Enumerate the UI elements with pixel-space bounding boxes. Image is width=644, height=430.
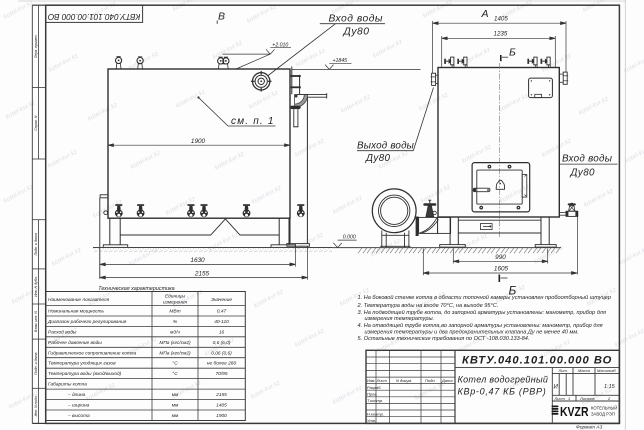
- svg-text:kotel-kvr.kz: kotel-kvr.kz: [251, 184, 284, 206]
- svg-text:Разраб.: Разраб.: [367, 385, 381, 390]
- svg-text:Справ. N: Справ. N: [34, 115, 38, 130]
- svg-text:kotel-kvr.kz: kotel-kvr.kz: [253, 288, 286, 310]
- svg-text:Масштаб: Масштаб: [597, 368, 616, 373]
- svg-text:kotel-kvr.kz: kotel-kvr.kz: [414, 380, 447, 402]
- svg-text:kotel-kvr.kz: kotel-kvr.kz: [340, 93, 373, 115]
- svg-text:Ду80: Ду80: [365, 153, 391, 164]
- svg-text:16: 16: [219, 329, 225, 335]
- svg-text:kotel-kvr.kz: kotel-kvr.kz: [214, 150, 247, 172]
- svg-text:%: %: [173, 319, 178, 325]
- svg-text:1630: 1630: [190, 257, 205, 264]
- svg-text:°С: °С: [172, 371, 178, 377]
- svg-text:Утв.: Утв.: [367, 418, 376, 423]
- svg-text:Инв. N подл.: Инв. N подл.: [34, 395, 38, 416]
- svg-text:kotel-kvr.kz: kotel-kvr.kz: [332, 384, 365, 406]
- svg-text:Лист: Лист: [376, 378, 388, 383]
- svg-text:Подп.: Подп.: [425, 378, 436, 383]
- svg-text:kotel-kvr.kz: kotel-kvr.kz: [3, 0, 36, 21]
- svg-text:И: И: [554, 385, 559, 391]
- svg-text:мм: мм: [172, 393, 179, 398]
- svg-text:5. Остальные технические треб: 5. Остальные технические требования по О…: [358, 336, 530, 342]
- svg-text:kotel-kvr.kz: kotel-kvr.kz: [582, 0, 615, 14]
- svg-text:+2.010: +2.010: [272, 42, 288, 48]
- svg-text:Листов: Листов: [579, 396, 595, 401]
- svg-text:Б: Б: [509, 47, 516, 59]
- svg-text:мм: мм: [172, 414, 179, 419]
- svg-text:kotel-kvr.kz: kotel-kvr.kz: [47, 148, 80, 170]
- svg-text:Н.контр.: Н.контр.: [367, 411, 384, 416]
- svg-text:м3/ч: м3/ч: [170, 329, 180, 335]
- svg-text:kotel-kvr.kz: kotel-kvr.kz: [87, 101, 120, 123]
- svg-text:kotel-kvr.kz: kotel-kvr.kz: [498, 92, 531, 114]
- svg-text:kotel-kvr.kz: kotel-kvr.kz: [246, 3, 279, 25]
- svg-text:kotel-kvr.kz: kotel-kvr.kz: [372, 38, 405, 60]
- svg-text:Инв. N дубл.: Инв. N дубл.: [34, 276, 38, 297]
- svg-text:В: В: [218, 11, 225, 23]
- svg-text:kotel-kvr.kz: kotel-kvr.kz: [618, 245, 644, 267]
- svg-text:Лист: Лист: [554, 396, 566, 401]
- svg-text:2: 2: [607, 396, 611, 401]
- svg-text:4. На отводящей трубе котла,в: 4. На отводящей трубе котла,во запорной …: [358, 322, 603, 329]
- svg-text:1405: 1405: [494, 15, 508, 22]
- svg-text:kotel-kvr.kz: kotel-kvr.kz: [51, 246, 84, 268]
- svg-text:2155: 2155: [194, 270, 210, 277]
- svg-text:мм: мм: [172, 404, 179, 409]
- svg-text:1405: 1405: [216, 403, 227, 409]
- svg-text:Перв. примен.: Перв. примен.: [34, 34, 38, 58]
- svg-text:Масса: Масса: [578, 368, 591, 373]
- svg-text:0.000: 0.000: [343, 235, 356, 241]
- svg-text:2. Температура воды на входе: 2. Температура воды на входе 70°С, на вы…: [357, 303, 499, 309]
- svg-text:1900: 1900: [191, 138, 206, 145]
- svg-text:КВТУ.040.101.00.000 ВО: КВТУ.040.101.00.000 ВО: [462, 354, 612, 366]
- svg-text:ЗАВОД РЭП: ЗАВОД РЭП: [591, 412, 615, 417]
- svg-text:1:15: 1:15: [604, 384, 616, 390]
- svg-text:Пров.: Пров.: [367, 391, 378, 396]
- svg-text:измерения температуры.: измерения температуры.: [365, 316, 435, 322]
- svg-text:kotel-kvr.kz: kotel-kvr.kz: [422, 0, 455, 20]
- svg-text:см. п. 1: см. п. 1: [231, 116, 275, 127]
- svg-text:kotel-kvr.kz: kotel-kvr.kz: [295, 47, 328, 69]
- svg-text:1: 1: [568, 396, 570, 401]
- svg-text:0,6 (6,0): 0,6 (6,0): [213, 340, 231, 346]
- svg-text:Техническая характеристика: Техническая характеристика: [98, 286, 174, 292]
- svg-text:Наименование показателя: Наименование показателя: [48, 297, 110, 303]
- svg-text:1. На боковой стенке котла в: 1. На боковой стенке котла в области топ…: [358, 294, 612, 301]
- svg-text:kotel-kvr.kz: kotel-kvr.kz: [172, 0, 205, 13]
- svg-text:Ду80: Ду80: [343, 27, 370, 38]
- svg-text:kotel-kvr.kz: kotel-kvr.kz: [578, 95, 611, 117]
- svg-text:70/95: 70/95: [215, 371, 227, 377]
- svg-text:измерения: измерения: [163, 301, 187, 306]
- svg-text:МПа (кгс/см2): МПа (кгс/см2): [159, 350, 191, 356]
- svg-text:kotel-kvr.kz: kotel-kvr.kz: [175, 88, 208, 110]
- svg-text:kotel-kvr.kz: kotel-kvr.kz: [294, 327, 327, 349]
- svg-text:Вход воды: Вход воды: [562, 154, 613, 165]
- svg-text:kotel-kvr.kz: kotel-kvr.kz: [418, 91, 451, 113]
- svg-text:Единицы: Единицы: [165, 294, 186, 300]
- svg-text:kotel-kvr.kz: kotel-kvr.kz: [248, 89, 281, 111]
- svg-text:kotel-kvr.kz: kotel-kvr.kz: [624, 143, 644, 165]
- svg-text:КОТЕЛЬНЫЙ: КОТЕЛЬНЫЙ: [591, 406, 617, 411]
- svg-text:Температура уходящих газов: Температура уходящих газов: [48, 361, 116, 367]
- svg-text:kotel-kvr.kz: kotel-kvr.kz: [420, 183, 453, 205]
- svg-text:Лит.: Лит.: [558, 368, 568, 373]
- svg-text:kotel-kvr.kz: kotel-kvr.kz: [623, 53, 644, 75]
- svg-text:KVZR: KVZR: [560, 404, 589, 419]
- svg-text:Т.контр.: Т.контр.: [367, 398, 383, 403]
- svg-text:Ду80: Ду80: [570, 167, 596, 178]
- svg-text:kotel-kvr.kz: kotel-kvr.kz: [3, 183, 36, 205]
- svg-text:Значение: Значение: [211, 297, 232, 303]
- svg-text:kotel-kvr.kz: kotel-kvr.kz: [457, 232, 490, 254]
- svg-text:990: 990: [495, 254, 506, 261]
- svg-text:kotel-kvr.kz: kotel-kvr.kz: [250, 379, 283, 401]
- svg-text:Дата: Дата: [441, 378, 453, 383]
- svg-text:Котел водогрейный: Котел водогрейный: [458, 375, 549, 385]
- svg-text:1900: 1900: [216, 413, 227, 419]
- svg-text:1605: 1605: [494, 266, 509, 273]
- svg-text:0,47: 0,47: [217, 309, 227, 315]
- svg-text:kotel-kvr.kz: kotel-kvr.kz: [48, 52, 81, 74]
- svg-text:Изм.: Изм.: [367, 378, 376, 383]
- svg-text:Расход воды: Расход воды: [48, 329, 77, 335]
- svg-text:Вход воды: Вход воды: [329, 14, 383, 25]
- svg-text:°С: °С: [172, 361, 178, 367]
- svg-text:Температура воды (вход/выход): Температура воды (вход/выход): [48, 371, 122, 377]
- svg-text:40-110: 40-110: [214, 319, 229, 325]
- svg-text:Взам. инв. N: Взам. инв. N: [34, 311, 38, 332]
- svg-text:КВТУ.040.101.00.000 ВО: КВТУ.040.101.00.000 ВО: [47, 12, 140, 21]
- svg-text:Рабочее давление воды: Рабочее давление воды: [48, 340, 102, 346]
- svg-text:kotel-kvr.kz: kotel-kvr.kz: [130, 149, 163, 171]
- svg-text:КВр-0,47 КБ (РВР): КВр-0,47 КБ (РВР): [458, 387, 547, 397]
- svg-text:Габариты котла: Габариты котла: [48, 382, 87, 388]
- svg-text:МПа (кгс/см2): МПа (кгс/см2): [159, 340, 191, 346]
- svg-text:Диапазон рабочего регулировани: Диапазон рабочего регулирования: [47, 319, 127, 325]
- svg-text:kotel-kvr.kz: kotel-kvr.kz: [212, 39, 245, 61]
- svg-text:МВт: МВт: [169, 309, 180, 315]
- svg-text:kotel-kvr.kz: kotel-kvr.kz: [294, 137, 327, 159]
- svg-text:– длина: – длина: [67, 392, 86, 398]
- svg-text:kotel-kvr.kz: kotel-kvr.kz: [461, 143, 494, 165]
- svg-text:Подп. и дата: Подп. и дата: [34, 233, 38, 256]
- svg-text:kotel-kvr.kz: kotel-kvr.kz: [614, 327, 644, 349]
- svg-text:kotel-kvr.kz: kotel-kvr.kz: [583, 187, 616, 209]
- svg-text:– ширина: – ширина: [67, 404, 90, 409]
- svg-text:N докум.: N докум.: [396, 378, 412, 383]
- svg-text:Выход воды: Выход воды: [357, 141, 415, 152]
- svg-text:А: А: [481, 8, 489, 20]
- svg-text:Подп. и дата: Подп. и дата: [34, 352, 38, 375]
- svg-text:0,06 (0,6): 0,06 (0,6): [211, 350, 232, 356]
- svg-text:не более 280: не более 280: [207, 361, 237, 367]
- svg-text:– высота: – высота: [67, 414, 90, 419]
- svg-text:Гидравлическое сопротивление к: Гидравлическое сопротивление котла: [48, 350, 136, 356]
- svg-text:измерения температуры и два пр: измерения температуры и два предохраните…: [365, 329, 579, 335]
- svg-text:2155: 2155: [215, 392, 227, 398]
- svg-text:+1845: +1845: [333, 58, 348, 64]
- svg-text:1235: 1235: [494, 31, 508, 38]
- svg-text:kotel-kvr.kz: kotel-kvr.kz: [332, 194, 365, 216]
- svg-text:Формат А3: Формат А3: [576, 424, 603, 430]
- svg-text:Номинальная мощность: Номинальная мощность: [48, 309, 105, 315]
